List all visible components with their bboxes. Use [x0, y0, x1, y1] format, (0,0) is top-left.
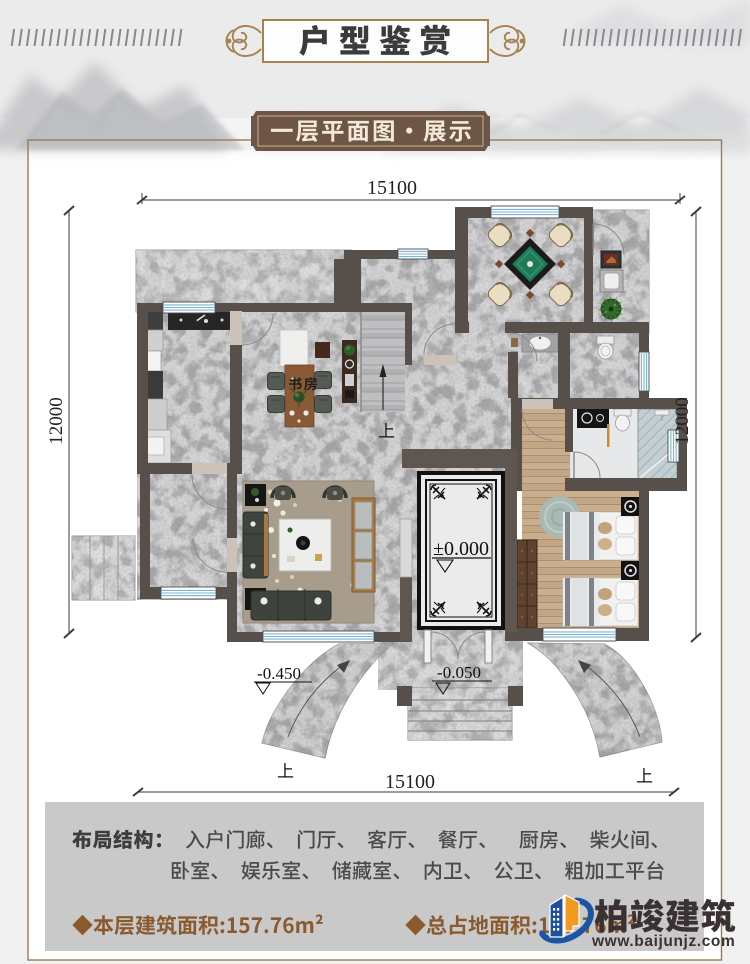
- svg-text:15100: 15100: [367, 177, 417, 199]
- svg-text:-0.450: -0.450: [257, 664, 301, 683]
- svg-text:12000: 12000: [46, 397, 67, 445]
- svg-text:-0.050: -0.050: [437, 663, 481, 682]
- svg-text:www.baijunjz.com: www.baijunjz.com: [591, 933, 735, 950]
- svg-text:12000: 12000: [672, 397, 693, 445]
- svg-text:±0.000: ±0.000: [433, 538, 489, 560]
- svg-text:15100: 15100: [385, 771, 435, 793]
